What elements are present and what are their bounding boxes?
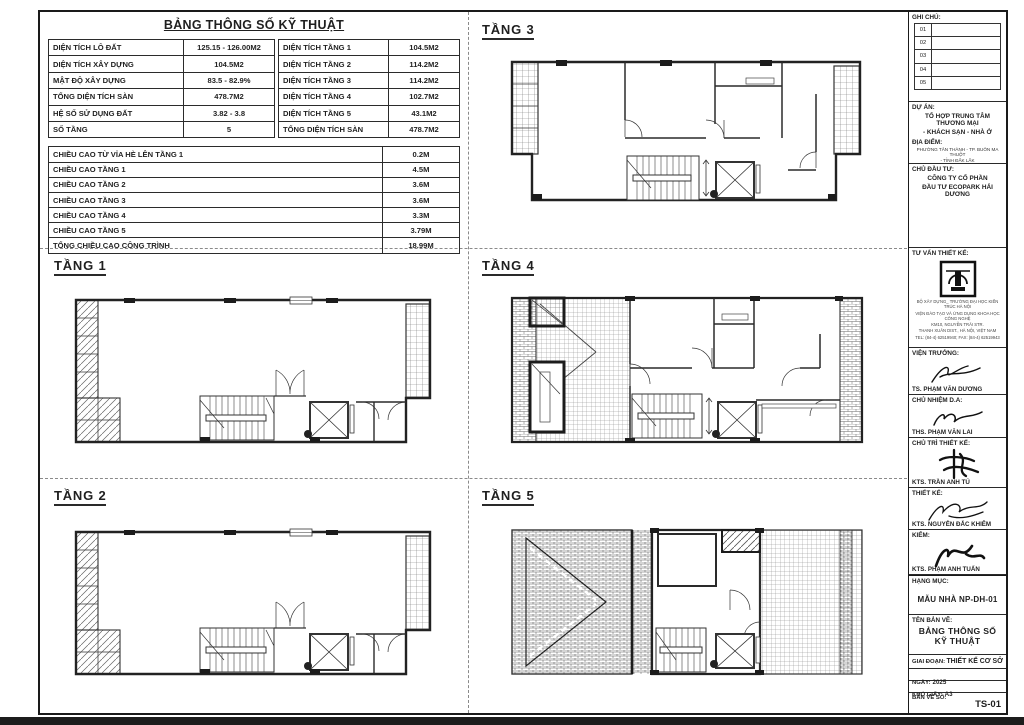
table-row: 04 [915,63,1000,76]
table-row: DIỆN TÍCH TẦNG 1104.5M2 [279,40,459,55]
notes-table: 01 02 03 04 05 [914,23,1001,90]
location-line-2: - TỈNH ĐẮK LẮK [912,158,1003,163]
table-row: 01 [915,24,1000,36]
elevator [304,402,354,438]
signer-designer: THIẾT KẾ: KTS. NGUYỄN ĐẮC KHIÊM [909,488,1006,530]
stair [200,628,274,672]
plans-area: BẢNG THÔNG SỐ KỸ THUẬT DIỆN TÍCH LÔ ĐẤT1… [40,12,907,713]
signer-name: THS. PHẠM VĂN LAI [912,429,973,436]
table-row: MẬT ĐỘ XÂY DỰNG83.5 - 82.9% [49,72,274,88]
spec-label: SỐ TẦNG [49,122,183,137]
floor-panel-tang-4: TẦNG 4 [468,248,907,478]
spec-label: TỔNG DIỆN TÍCH SÀN [279,122,388,137]
spec-label: DIỆN TÍCH TẦNG 2 [279,56,388,71]
signer-manager: CHỦ NHIỆM D.A: THS. PHẠM VĂN LAI [909,395,1006,438]
double-door [274,370,306,396]
double-door [274,602,306,628]
drawing-name-label: TÊN BẢN VẼ: [912,617,1003,624]
spec-table-heights: CHIỀU CAO TỪ VỈA HÈ LÊN TẦNG 10.2M CHIỀU… [48,146,460,253]
location-line: PHƯỜNG TÂN THÀNH - TP. BUÔN MA THUỘT [912,147,1003,157]
signer-lead: CHỦ TRÌ THIẾT KẾ: KTS. TRẦN ANH TÚ [909,438,1006,488]
spec-value: 114.2M2 [388,56,459,71]
spec-value: 478.7M2 [388,122,459,137]
bottom-black-bar [0,717,1024,725]
spec-value: 4.5M [382,163,459,177]
spec-value: 3.3M [382,208,459,222]
signature-icon [930,448,986,480]
terrace-right-strip [840,530,852,674]
floor-plan-drawing-tang-4 [510,294,866,446]
signer-name: KTS. NGUYỄN ĐẮC KHIÊM [912,521,991,528]
roof-mid-strip [632,530,652,674]
table-row: DIỆN TÍCH TẦNG 543.1M2 [279,105,459,121]
floor-plan-drawing-tang-3 [510,58,866,210]
floor-plan-drawing-tang-2 [74,526,434,678]
spec-table-panel: BẢNG THÔNG SỐ KỸ THUẬT DIỆN TÍCH LÔ ĐẤT1… [40,12,468,248]
table-row: TỔNG DIỆN TÍCH SÀN478.7M2 [279,121,459,137]
spec-table-right: DIỆN TÍCH TẦNG 1104.5M2 DIỆN TÍCH TẦNG 2… [278,39,460,138]
table-row: CHIỀU CAO TẦNG 43.3M [49,207,459,222]
stage-label: GIAI ĐOẠN: [912,659,945,665]
table-row: CHIỀU CAO TỪ VỈA HÈ LÊN TẦNG 10.2M [49,147,459,161]
signer-role: CHỦ TRÌ THIẾT KẾ: [912,440,1003,447]
signer-role: VIỆN TRƯỞNG: [912,350,1003,357]
spec-label: CHIỀU CAO TẦNG 1 [49,163,382,177]
balcony-right [406,304,430,398]
table-row: CHIỀU CAO TẦNG 14.5M [49,162,459,177]
spec-value: 114.2M2 [388,73,459,88]
spec-label: DIỆN TÍCH TẦNG 5 [279,106,388,121]
stage-row: GIAI ĐOẠN: THIẾT KẾ CƠ SỞ [909,655,1006,669]
investor-name-2: ĐẦU TƯ ECOPARK HẢI DƯƠNG [912,184,1003,198]
spec-label: DIỆN TÍCH LÔ ĐẤT [49,40,183,55]
spec-label: HỆ SỐ SỬ DỤNG ĐẤT [49,106,183,121]
location-label: ĐỊA ĐIỂM: [912,139,1003,146]
spec-label: DIỆN TÍCH TẦNG 1 [279,40,388,55]
floor-panel-tang-3: TẦNG 3 [468,12,907,248]
table-row: HỆ SỐ SỬ DỤNG ĐẤT3.82 - 3.8 [49,105,274,121]
investor-name: CÔNG TY CỔ PHẦN [912,175,1003,182]
category-value: MẪU NHÀ NP-DH-01 [912,595,1003,604]
floor-label: TẦNG 4 [482,258,534,276]
sheet-number-value: TS-01 [975,699,1001,710]
floor-panel-tang-1: TẦNG 1 [40,248,468,478]
note-number: 02 [915,37,932,49]
table-row: DIỆN TÍCH TẦNG 2114.2M2 [279,55,459,71]
table-row: DIỆN TÍCH LÔ ĐẤT125.15 - 126.00M2 [49,40,274,55]
door-arcs [362,402,406,420]
table-row: CHIỀU CAO TẦNG 53.79M [49,222,459,237]
project-name-2: - KHÁCH SẠN - NHÀ Ở [912,129,1003,136]
sheet-frame: BẢNG THÔNG SỐ KỸ THUẬT DIỆN TÍCH LÔ ĐẤT1… [38,10,1008,715]
spec-value: 104.5M2 [388,40,459,55]
notes-section: GHI CHÚ: 01 02 03 04 05 [909,12,1006,102]
table-row: CHIỀU CAO TẦNG 33.6M [49,192,459,207]
stage-value: THIẾT KẾ CƠ SỞ [946,658,1003,665]
paper-row: KHỔ GIẤY:A3 [909,681,1006,693]
spec-value: 478.7M2 [183,89,274,104]
note-number: 04 [915,64,932,76]
investor-label: CHỦ ĐẦU TƯ: [912,166,1003,173]
table-row: TỔNG DIỆN TÍCH SÀN478.7M2 [49,88,274,104]
table-row: 03 [915,49,1000,62]
floor-panel-tang-5: TẦNG 5 [468,478,907,713]
signature-icon [928,405,988,431]
stair [627,156,709,200]
balcony-right [406,536,430,630]
interior-walls [625,62,816,170]
table-row: CHIỀU CAO TẦNG 23.6M [49,177,459,192]
elevator [712,402,762,438]
consultant-address-2: VIỆN ĐÀO TẠO VÀ ỨNG DỤNG KHOA HỌC CÔNG N… [912,311,1003,322]
spec-label: CHIỀU CAO TỪ VỈA HÈ LÊN TẦNG 1 [49,147,382,161]
spec-value: 102.7M2 [388,89,459,104]
elevator [710,162,760,198]
spec-table-title: BẢNG THÔNG SỐ KỸ THUẬT [40,18,468,32]
spec-label: DIỆN TÍCH XÂY DỰNG [49,56,183,71]
stair [200,396,274,440]
spec-label: MẬT ĐỘ XÂY DỰNG [49,73,183,88]
signer-name: KTS. PHẠM ANH TUẤN [912,566,980,573]
consultant-address-4: THANH XUÂN DIST., HÀ NỘI, VIỆT NAM [912,328,1003,333]
floor-label: TẦNG 1 [54,258,106,276]
floor-label: TẦNG 3 [482,22,534,40]
stair [656,628,706,672]
spec-value: 104.5M2 [183,56,274,71]
dark-box-bottom [530,362,564,432]
balcony-right [834,66,860,154]
table-row: SỐ TẦNG5 [49,121,274,137]
elevator [710,634,760,668]
table-row: 05 [915,76,1000,89]
consultant-section: TƯ VẤN THIẾT KẾ: BỘ XÂY DỰNG_ TRƯỜNG ĐẠI… [909,248,1006,348]
drawing-name-line1: BẢNG THÔNG SỐ [912,626,1003,636]
spec-value: 3.79M [382,223,459,237]
floor-label: TẦNG 5 [482,488,534,506]
table-row: DIỆN TÍCH TẦNG 3114.2M2 [279,72,459,88]
spec-value: 43.1M2 [388,106,459,121]
signer-name: KTS. TRẦN ANH TÚ [912,479,970,486]
hatched-wall-left [76,532,98,630]
door-arcs [362,634,406,652]
signer-name: TS. PHẠM VĂN DƯƠNG [912,386,982,393]
note-number: 03 [915,50,932,62]
balcony-left [512,62,538,154]
room-top [658,534,716,586]
signer-director: VIỆN TRƯỞNG: TS. PHẠM VĂN DƯƠNG [909,348,1006,395]
consultant-address-3: KM10, NGUYỄN TRÃI STR. [912,322,1003,327]
signature-icon [928,358,988,388]
spec-value: 125.15 - 126.00M2 [183,40,274,55]
date-row: NGÀY:2025 [909,669,1006,681]
floor-panel-tang-2: TẦNG 2 [40,478,468,713]
spec-table-left: DIỆN TÍCH LÔ ĐẤT125.15 - 126.00M2 DIỆN T… [48,39,275,138]
roof-left [512,530,632,674]
elevator [304,634,354,670]
category-section: HẠNG MỤC: MẪU NHÀ NP-DH-01 [909,575,1006,615]
spec-label: CHIỀU CAO TẦNG 4 [49,208,382,222]
investor-section: CHỦ ĐẦU TƯ: CÔNG TY CỔ PHẦN ĐẦU TƯ ECOPA… [909,164,1006,248]
project-name: TỔ HỢP TRUNG TÂM THƯƠNG MẠI [912,113,1003,127]
spec-label: CHIỀU CAO TẦNG 2 [49,178,382,192]
table-row: 02 [915,36,1000,49]
signer-role: CHỦ NHIỆM D.A: [912,397,1003,404]
roof-strip-right [840,298,862,442]
signer-checker: KIỂM: KTS. PHẠM ANH TUẤN [909,530,1006,575]
spec-value: 0.2M [382,147,459,161]
university-logo-icon [939,260,977,298]
note-number: 01 [915,24,932,36]
note-number: 05 [915,77,932,89]
interior-walls [356,402,406,442]
spec-label: DIỆN TÍCH TẦNG 3 [279,73,388,88]
table-row: DIỆN TÍCH XÂY DỰNG104.5M2 [49,55,274,71]
notes-label: GHI CHÚ: [912,14,1003,21]
stair [632,394,712,438]
spec-label: CHIỀU CAO TẦNG 3 [49,193,382,207]
project-label: DỰ ÁN: [912,104,1003,111]
interior-walls [356,634,406,674]
spec-value: 3.82 - 3.8 [183,106,274,121]
floor-label: TẦNG 2 [54,488,106,506]
floor-plan-drawing-tang-5 [510,526,866,678]
signer-role: KIỂM: [912,532,1003,539]
signer-role: THIẾT KẾ: [912,490,1003,497]
drawing-name-line2: KỸ THUẬT [912,636,1003,646]
category-label: HẠNG MỤC: [912,578,1003,585]
spec-value: 3.6M [382,193,459,207]
floor-plan-drawing-tang-1 [74,294,434,446]
consultant-label: TƯ VẤN THIẾT KẾ: [912,250,1003,257]
spec-upper-tables: DIỆN TÍCH LÔ ĐẤT125.15 - 126.00M2 DIỆN T… [48,39,460,138]
table-row: DIỆN TÍCH TẦNG 4102.7M2 [279,88,459,104]
consultant-address-1: BỘ XÂY DỰNG_ TRƯỜNG ĐẠI HỌC KIẾN TRÚC HÀ… [912,299,1003,310]
spec-value: 3.6M [382,178,459,192]
spec-label: CHIỀU CAO TẦNG 5 [49,223,382,237]
spec-label: DIỆN TÍCH TẦNG 4 [279,89,388,104]
consultant-address-5: TEL: (84-4) 62519940; FAX: (84-4) 625199… [912,335,1003,340]
project-section: DỰ ÁN: TỔ HỢP TRUNG TÂM THƯƠNG MẠI - KHÁ… [909,102,1006,164]
title-block: GHI CHÚ: 01 02 03 04 05 DỰ ÁN: TỔ HỢP TR… [908,12,1006,713]
spec-label: TỔNG DIỆN TÍCH SÀN [49,89,183,104]
spec-value: 83.5 - 82.9% [183,73,274,88]
sheet-number-section: BẢN VẼ SỐ: TS-01 [909,693,1006,713]
spec-value: 5 [183,122,274,137]
drawing-name-section: TÊN BẢN VẼ: BẢNG THÔNG SỐ KỸ THUẬT [909,615,1006,655]
hatched-wall-left [76,300,98,398]
hatched-box-top [722,530,760,552]
